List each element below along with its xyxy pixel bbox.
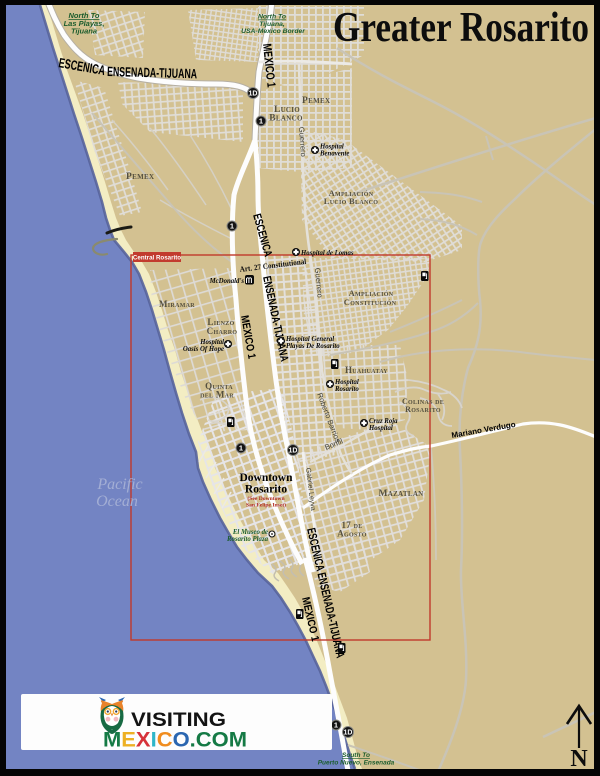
svg-text:Pacific: Pacific bbox=[96, 476, 142, 493]
svg-text:1: 1 bbox=[230, 222, 234, 231]
svg-text:Pemex: Pemex bbox=[126, 172, 154, 182]
svg-text:1D: 1D bbox=[249, 91, 258, 98]
svg-text:Hospital: Hospital bbox=[368, 425, 393, 432]
svg-text:Rosarito: Rosarito bbox=[334, 386, 359, 393]
svg-text:Tijuana: Tijuana bbox=[71, 27, 97, 36]
svg-text:Rosarito: Rosarito bbox=[245, 484, 287, 496]
svg-text:North To: North To bbox=[258, 14, 286, 21]
svg-text:Central Rosarito: Central Rosarito bbox=[133, 255, 181, 262]
svg-text:Blanco: Blanco bbox=[269, 114, 303, 124]
svg-text:Rosarito Plaza: Rosarito Plaza bbox=[226, 536, 269, 543]
svg-text:Constitución: Constitución bbox=[344, 297, 397, 307]
svg-text:Greater Rosarito: Greater Rosarito bbox=[333, 5, 589, 51]
svg-text:Playas De Rosarito: Playas De Rosarito bbox=[286, 343, 340, 350]
svg-text:Miramar: Miramar bbox=[159, 299, 195, 309]
svg-text:ENSENADA-TIJUANA: ENSENADA-TIJUANA bbox=[107, 64, 198, 81]
svg-text:Rosarito: Rosarito bbox=[405, 405, 441, 414]
svg-text:Downtown: Downtown bbox=[239, 472, 293, 484]
svg-text:South To: South To bbox=[342, 752, 370, 759]
svg-text:1D: 1D bbox=[344, 730, 353, 737]
svg-text:1D: 1D bbox=[289, 448, 298, 455]
svg-text:N: N bbox=[570, 746, 588, 772]
svg-text:del Mar: del Mar bbox=[200, 390, 234, 400]
svg-text:1: 1 bbox=[239, 444, 243, 453]
svg-text:Benavente: Benavente bbox=[319, 151, 349, 158]
svg-text:Tijuana,: Tijuana, bbox=[259, 21, 285, 28]
svg-text:El Museo de: El Museo de bbox=[232, 529, 268, 536]
svg-text:Mazatlan: Mazatlan bbox=[378, 489, 423, 499]
svg-text:Ocean: Ocean bbox=[96, 493, 138, 510]
svg-text:Charro: Charro bbox=[207, 326, 238, 336]
svg-text:San Felipe Inset): San Felipe Inset) bbox=[246, 502, 286, 509]
svg-text:Agosto: Agosto bbox=[337, 529, 367, 539]
svg-text:Hospital: Hospital bbox=[199, 339, 224, 346]
svg-text:1: 1 bbox=[334, 721, 338, 730]
svg-text:Oasis Of Hope: Oasis Of Hope bbox=[183, 346, 224, 353]
svg-text:MEXICO.COM: MEXICO.COM bbox=[103, 729, 247, 752]
svg-text:Pemex: Pemex bbox=[302, 96, 330, 106]
svg-text:Hospital: Hospital bbox=[319, 144, 344, 151]
svg-text:Hospital: Hospital bbox=[334, 379, 359, 386]
svg-text:Puerto Nuevo, Ensenada: Puerto Nuevo, Ensenada bbox=[318, 760, 395, 767]
svg-text:Hospital de Lomas: Hospital de Lomas bbox=[300, 250, 354, 257]
svg-text:1: 1 bbox=[259, 117, 263, 126]
svg-text:Cruz Roja: Cruz Roja bbox=[369, 418, 398, 425]
svg-text:Lucio Blanco: Lucio Blanco bbox=[324, 196, 378, 206]
svg-text:McDonald's: McDonald's bbox=[209, 278, 245, 285]
svg-text:Hospital General: Hospital General bbox=[285, 336, 334, 343]
svg-text:(See Downtown: (See Downtown bbox=[247, 495, 285, 502]
svg-text:Huahuatay: Huahuatay bbox=[345, 365, 388, 375]
svg-text:USA-Mexico Border: USA-Mexico Border bbox=[241, 28, 305, 35]
